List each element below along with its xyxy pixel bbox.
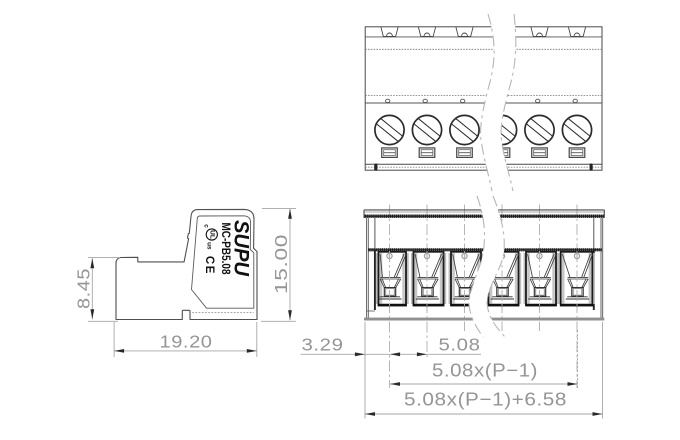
- svg-text:c: c: [202, 224, 209, 228]
- svg-text:5.08x(P−1): 5.08x(P−1): [432, 360, 538, 381]
- svg-text:19.20: 19.20: [160, 331, 213, 351]
- svg-text:5.08x(P−1)+6.58: 5.08x(P−1)+6.58: [404, 389, 567, 410]
- svg-text:5.08: 5.08: [439, 334, 481, 354]
- svg-text:us: us: [205, 242, 212, 250]
- svg-text:15.00: 15.00: [271, 234, 291, 294]
- svg-text:3.29: 3.29: [302, 334, 344, 354]
- svg-text:UL: UL: [208, 230, 215, 239]
- svg-text:MC-PB5.08: MC-PB5.08: [219, 223, 233, 275]
- svg-text:8.45: 8.45: [74, 268, 94, 309]
- svg-text:CE: CE: [203, 256, 215, 275]
